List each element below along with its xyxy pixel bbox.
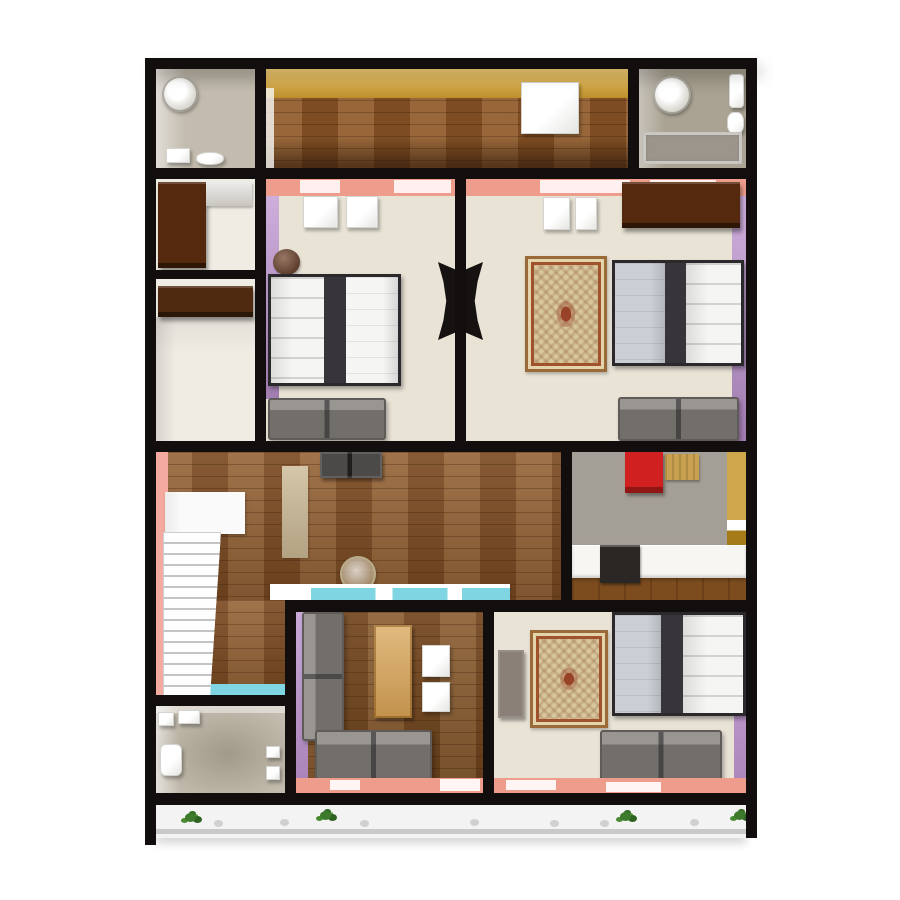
bedroom-bottom — [494, 612, 746, 793]
cistern — [166, 148, 190, 163]
cyan-breakfast-bar — [270, 584, 510, 600]
round-basin — [162, 76, 198, 112]
wall-bath-tr-left — [628, 58, 639, 179]
small-pot — [470, 819, 479, 826]
wall-bottom-rooms — [285, 600, 757, 612]
bed-blanket — [615, 615, 661, 713]
bed-blanket — [346, 277, 398, 383]
tv-cabinet — [320, 452, 382, 478]
bathroom-bottom-left — [156, 706, 285, 793]
doormat — [506, 780, 556, 790]
small-pot — [214, 820, 223, 827]
wall-closet-divider — [145, 270, 266, 279]
shower-fitting — [266, 766, 280, 780]
shower-fitting — [266, 746, 280, 758]
cyan-mat — [200, 684, 285, 695]
toilet — [160, 744, 182, 776]
double-bed — [268, 274, 401, 386]
wash-fixture — [727, 112, 744, 134]
gray-wardrobe — [498, 650, 524, 718]
small-pot — [280, 819, 289, 826]
plant — [620, 812, 631, 821]
white-cabinet — [521, 82, 579, 134]
red-cabinet — [625, 452, 663, 493]
round-stool — [273, 249, 300, 275]
bedroom-left — [266, 179, 455, 441]
bedroom-right — [466, 179, 746, 441]
bed-band — [661, 615, 683, 713]
shelf-box — [158, 712, 174, 726]
wall-top-row — [145, 168, 757, 179]
tan-cabinet — [665, 454, 699, 480]
corner-sofa-vertical — [302, 612, 344, 741]
floorplan-canvas — [0, 0, 900, 900]
shelf — [206, 182, 252, 206]
toilet — [196, 152, 224, 165]
doormat — [440, 779, 480, 791]
nightstand — [303, 196, 338, 228]
window-block — [394, 180, 451, 193]
doormat — [606, 782, 661, 792]
round-basin — [653, 76, 691, 114]
wall-kitchen-left — [561, 441, 572, 612]
hall-left-trim — [266, 88, 274, 168]
dark-wood-wardrobe — [158, 182, 206, 268]
stove — [600, 545, 640, 583]
double-bed — [612, 612, 746, 716]
closet-upper-left — [156, 179, 255, 270]
coffee-table — [374, 625, 412, 718]
sofa — [618, 397, 739, 441]
wall-bath-bl-top — [145, 695, 295, 706]
nightstand — [346, 196, 378, 228]
shelf-box — [178, 710, 200, 724]
plant — [185, 813, 196, 822]
dark-wood-wardrobe — [622, 182, 740, 228]
dark-wood-shelf — [158, 286, 253, 317]
wall-mid — [145, 441, 757, 452]
ornate-rug — [530, 630, 608, 728]
kitchen-counter — [572, 545, 746, 578]
nightstand — [543, 197, 570, 230]
wall-outer-bottom — [145, 793, 757, 805]
side-table — [422, 645, 450, 677]
under-counter-cabinets — [572, 578, 746, 600]
nook-shading — [156, 317, 255, 441]
bathroom-top-left — [156, 68, 255, 168]
closet-lower-left — [156, 279, 255, 441]
kitchen — [572, 452, 746, 600]
small-pot — [360, 820, 369, 827]
nightstand — [575, 197, 597, 230]
small-pot — [690, 819, 699, 826]
toilet — [729, 74, 744, 108]
carpet-runner — [282, 466, 308, 558]
family-room — [296, 612, 483, 793]
wall-left-column — [255, 58, 266, 452]
hall-top — [266, 68, 628, 168]
wall-outer-top — [145, 58, 757, 69]
window-block — [540, 180, 630, 193]
wall-bottom-divider — [483, 600, 494, 805]
bath-top-trim — [156, 706, 285, 713]
window-block — [300, 180, 340, 193]
bed-pillows — [271, 277, 324, 383]
balcony — [156, 805, 746, 838]
bed-pillows — [686, 263, 741, 363]
side-table — [422, 682, 450, 712]
ornate-rug — [525, 256, 607, 372]
doormat — [330, 780, 360, 790]
bathroom-top-right — [639, 68, 746, 168]
plant — [734, 811, 745, 820]
bed-pillows — [683, 615, 743, 713]
plant — [320, 811, 331, 820]
wall-family-room-left — [285, 600, 296, 805]
balcony-railing — [156, 829, 746, 834]
double-bed — [612, 260, 744, 366]
small-pot — [550, 820, 559, 827]
bed-blanket — [615, 263, 665, 363]
stair-landing — [165, 492, 245, 534]
sofa — [600, 730, 722, 782]
small-pot — [600, 820, 609, 827]
bed-band — [324, 277, 346, 383]
bed-band — [665, 263, 685, 363]
wall-bedroom-divider — [455, 168, 466, 452]
bathtub — [643, 132, 742, 164]
sofa — [268, 398, 386, 440]
corner-sofa-horizontal — [315, 730, 432, 782]
